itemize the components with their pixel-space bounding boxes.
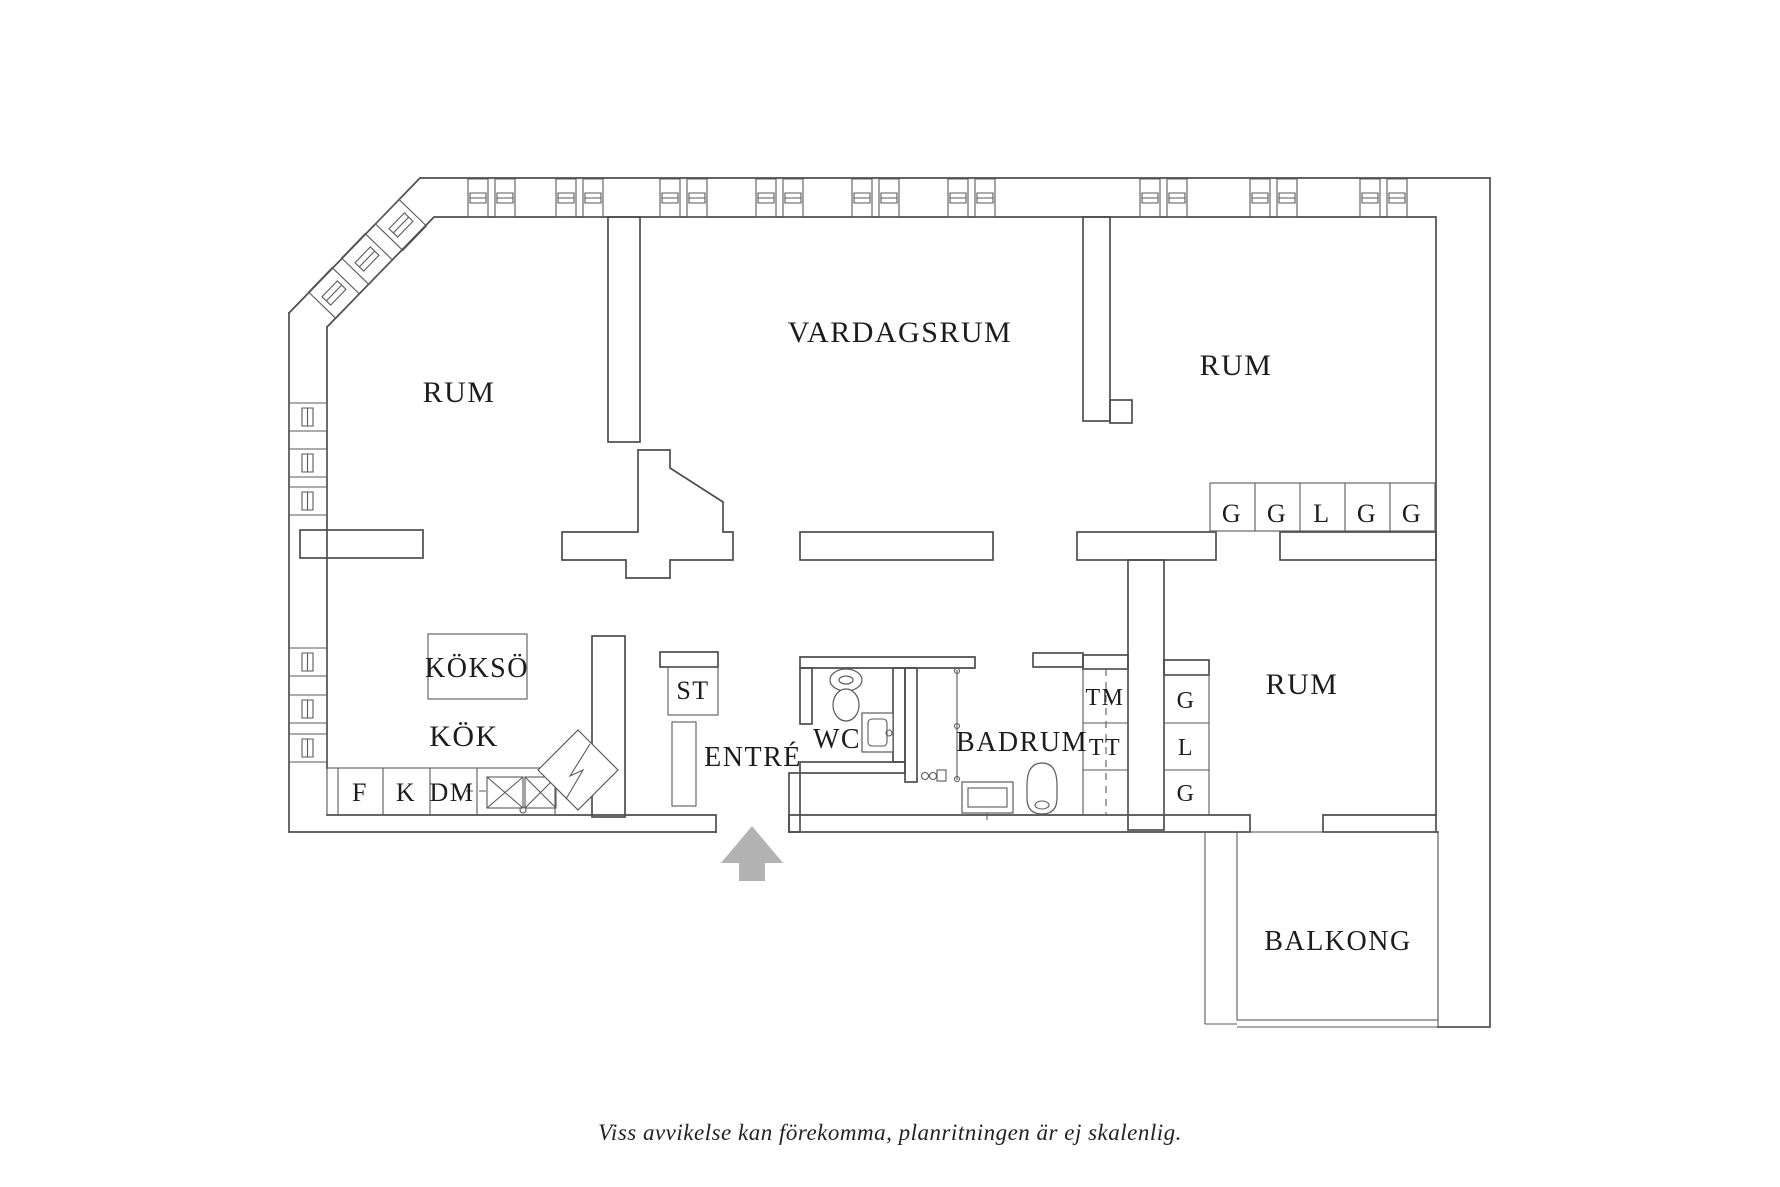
- wall-wc-west-lower: [789, 773, 800, 832]
- laundry-column: TM TT: [1083, 655, 1128, 815]
- wall-livingroom-east-tip: [1110, 400, 1132, 423]
- wardrobe-g3-label: G: [1357, 499, 1377, 528]
- wall-livingroom-south: [800, 532, 993, 560]
- wardrobe-col-g2-label: G: [1177, 781, 1196, 807]
- room-top-right-label: RUM: [1200, 349, 1273, 382]
- kitchen-label: KÖK: [429, 720, 499, 753]
- freezer-label: K: [396, 778, 416, 807]
- floor-plan-page: G G L G G: [0, 0, 1780, 1187]
- bathroom-valve-box: [937, 770, 946, 781]
- living-room-label: VARDAGSRUM: [788, 316, 1013, 349]
- wc-label: WC: [813, 724, 861, 755]
- closet-st-label: ST: [676, 676, 709, 705]
- wall-wc-east: [893, 668, 905, 762]
- wall-wc-south: [800, 762, 905, 773]
- wall-wc-north: [800, 657, 975, 668]
- wall-bathroom-north: [1033, 653, 1083, 667]
- washing-machine-label: TM: [1086, 685, 1125, 711]
- entrance-arrow-icon: [721, 826, 783, 881]
- top-wall-windows: [468, 179, 1407, 217]
- entrance-label: ENTRÉ: [704, 742, 802, 773]
- dishwasher-label: DM: [430, 778, 475, 807]
- wall-room-topleft-south: [300, 530, 423, 558]
- disclaimer-caption: Viss avvikelse kan förekomma, planritnin…: [598, 1120, 1182, 1145]
- kitchen-island-label: KÖKSÖ: [425, 653, 529, 684]
- wall-wc-west-upper: [800, 668, 812, 724]
- corner-stove: [538, 730, 618, 810]
- floor-plan-canvas: G G L G G: [0, 0, 1780, 1187]
- wardrobe-l1-label: L: [1313, 499, 1330, 528]
- fridge-label: F: [352, 778, 368, 807]
- wall-central-pillar: [562, 450, 733, 578]
- hall-wardrobe-box: [672, 722, 696, 806]
- wc-toilet-lid-button: [839, 676, 853, 684]
- wall-corridor-north-1: [1077, 532, 1216, 560]
- room-top-left-label: RUM: [423, 376, 496, 409]
- diagonal-wall-windows: [309, 200, 427, 319]
- bathroom-sink: [962, 782, 1013, 813]
- balcony-label: BALKONG: [1264, 926, 1411, 957]
- wall-room-topleft-east: [608, 217, 640, 442]
- laundry-top-band: [1083, 655, 1128, 669]
- exterior-walls: [289, 178, 1490, 1027]
- wardrobe-g2-label: G: [1267, 499, 1287, 528]
- bathroom-valve-2: [930, 773, 937, 780]
- balcony-side-wall: [1205, 832, 1237, 1024]
- wall-bathroom-west: [905, 668, 917, 782]
- wardrobe-col-l-label: L: [1178, 735, 1194, 761]
- wall-livingroom-east: [1083, 217, 1110, 421]
- room-labels: RUM VARDAGSRUM RUM KÖKSÖ KÖK F K DM ST E…: [352, 316, 1412, 957]
- wardrobe-g1-label: G: [1222, 499, 1242, 528]
- wardrobe-row-top-right: G G L G G: [1210, 483, 1435, 531]
- bathroom-toilet: [1027, 763, 1057, 814]
- closet-st-top-wall: [660, 652, 718, 667]
- wardrobe-g4-label: G: [1402, 499, 1422, 528]
- wardrobe-column-hall: G L G: [1164, 660, 1209, 815]
- wardrobe-col-top-band: [1164, 660, 1209, 675]
- tumble-dryer-label: TT: [1089, 735, 1121, 761]
- bathroom-valve-1: [922, 773, 929, 780]
- wall-shaft: [1128, 560, 1164, 830]
- room-bottom-right-label: RUM: [1266, 668, 1339, 701]
- wc-toilet-bowl: [833, 689, 859, 721]
- left-wall-windows: [289, 403, 327, 762]
- wardrobe-col-g1-label: G: [1177, 688, 1196, 714]
- wall-corridor-north-2: [1280, 532, 1436, 560]
- bathroom-label: BADRUM: [956, 727, 1088, 758]
